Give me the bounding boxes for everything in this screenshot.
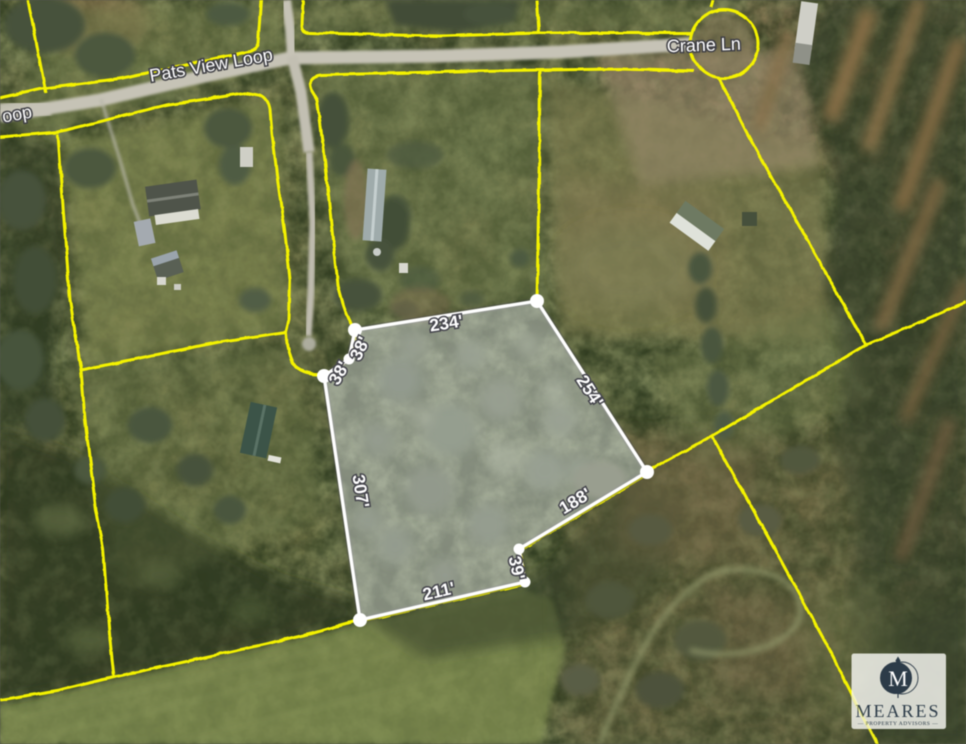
svg-text:M: M (888, 666, 908, 691)
svg-text:MEARES: MEARES (855, 701, 940, 721)
svg-text:Crane Ln: Crane Ln (666, 34, 741, 57)
svg-text:— PROPERTY ADVISORS —: — PROPERTY ADVISORS — (857, 721, 938, 727)
